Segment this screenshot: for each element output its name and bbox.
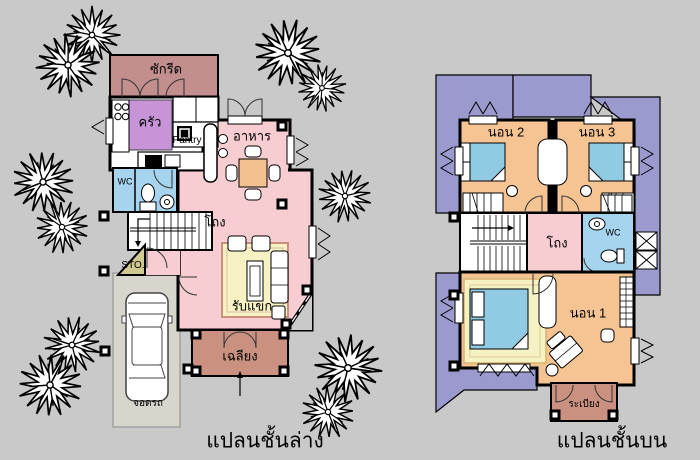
plan-graphics [0,0,700,460]
wc-upper [582,213,634,272]
label-bedroom3: นอน 3 [579,126,615,139]
label-pantry: Pantry [173,136,202,146]
label-porch: เฉลียง [222,350,257,363]
ground-floor-plan [92,55,330,427]
floor-plan-canvas: ซักรีด ครัว Pantry อาหาร WC โถง STO. รับ… [0,0,700,460]
dresser2 [463,193,503,212]
dining-french-doors [228,99,262,124]
label-living: รับแขก [232,300,272,313]
lamp3 [581,186,592,197]
shelf-upper [601,195,632,212]
label-storage: STO. [121,261,144,271]
label-wc-ground: WC [118,178,133,187]
bed2 [461,143,505,181]
label-kitchen: ครัว [139,116,162,129]
lamp2 [507,186,518,197]
side-table1 [601,329,614,342]
label-hall-ground: โถง [204,216,225,229]
label-hall-upper: โถง [546,237,567,250]
car [122,293,172,401]
label-bedroom1: นอน 1 [570,307,606,320]
stairs-ground [128,212,212,250]
label-balcony: ระเบียง [568,400,599,410]
caption-upper-floor: แปลนชั้นบน [557,431,667,452]
bed3 [589,143,633,181]
wc-ground [113,168,177,212]
caption-ground-floor: แปลนชั้นล่าง [206,431,324,452]
right-wardrobe [620,277,633,327]
bed1 [470,289,528,349]
label-laundry: ซักรีด [150,63,182,76]
wardrobe-center [538,139,567,185]
label-wc-upper: WC [606,229,621,238]
label-bedroom2: นอน 2 [488,126,524,139]
wardrobe1 [539,276,556,328]
label-dining: อาหาร [233,130,271,143]
stairs-upper [460,213,527,273]
label-carport: จอดรถ [133,399,163,409]
hatch-boxes [636,232,657,269]
stove-counter [112,100,129,152]
chair1 [546,364,558,376]
